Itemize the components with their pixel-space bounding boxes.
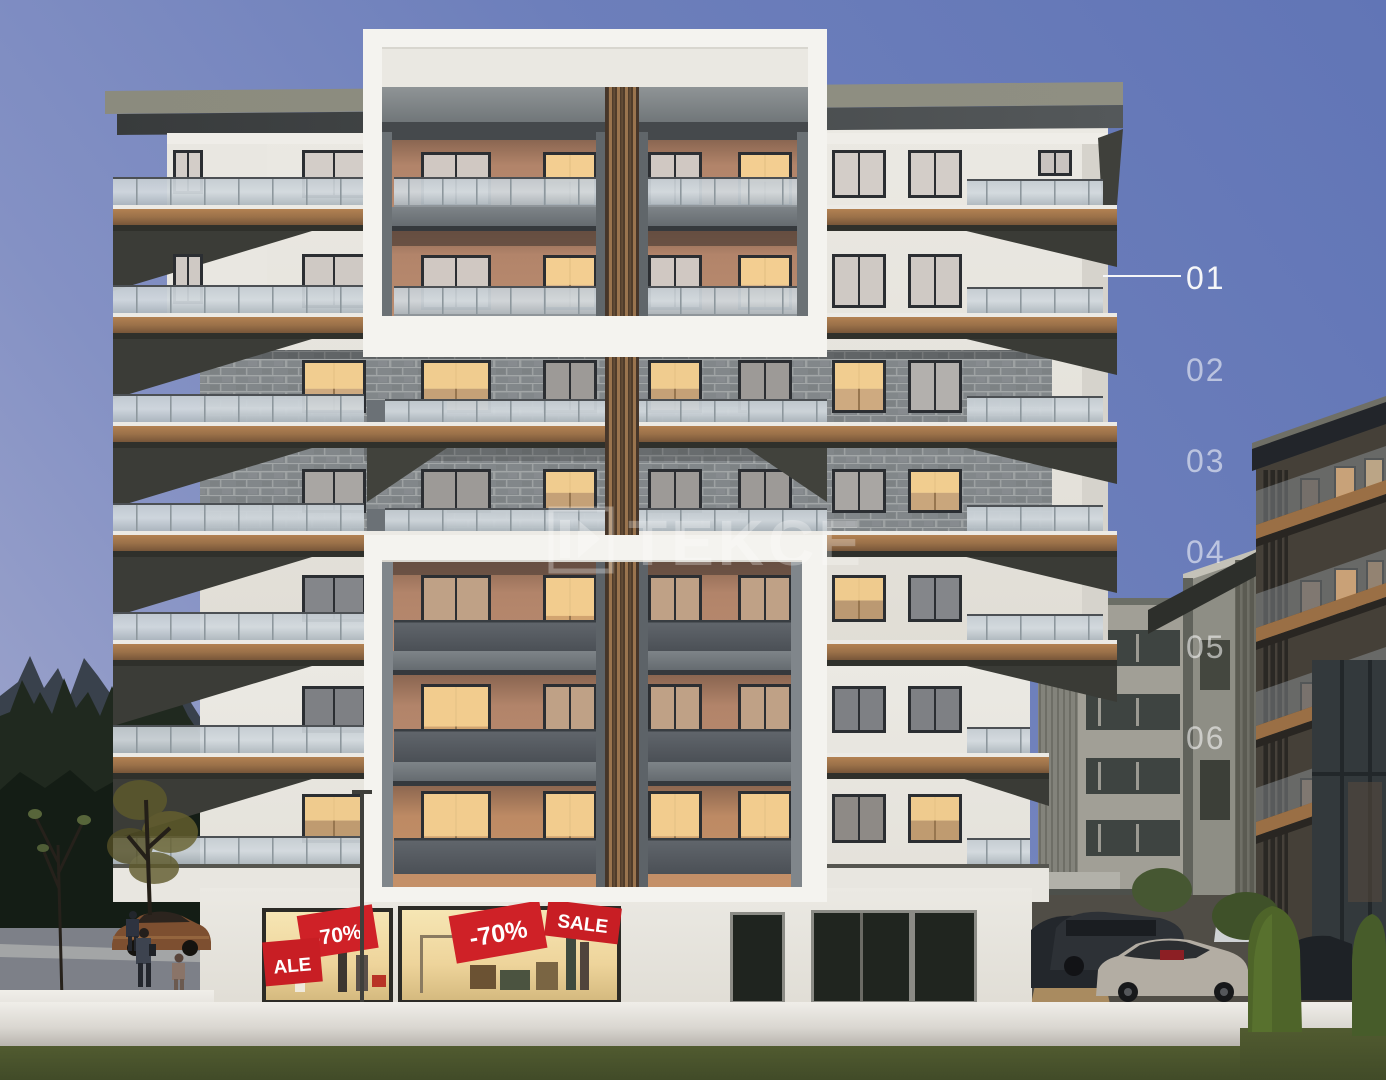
svg-text:01: 01	[1186, 260, 1226, 296]
svg-text:04: 04	[1186, 534, 1226, 570]
svg-text:03: 03	[1186, 443, 1226, 479]
svg-text:02: 02	[1186, 352, 1226, 388]
svg-text:06: 06	[1186, 720, 1226, 756]
svg-text:TEKCE: TEKCE	[628, 507, 865, 579]
svg-text:ALE: ALE	[273, 954, 313, 978]
svg-text:05: 05	[1186, 629, 1226, 665]
